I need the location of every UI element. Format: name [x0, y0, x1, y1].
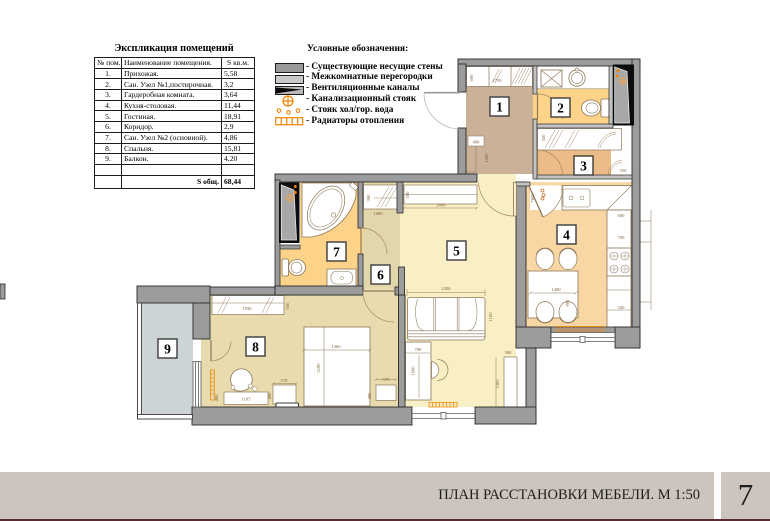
- svg-text:1100: 1100: [488, 312, 493, 322]
- svg-text:1: 1: [496, 100, 503, 115]
- svg-text:1000: 1000: [373, 211, 383, 216]
- svg-text:380: 380: [366, 194, 371, 202]
- svg-text:2: 2: [557, 101, 564, 116]
- svg-text:5: 5: [453, 244, 460, 259]
- svg-text:500: 500: [405, 191, 410, 199]
- svg-text:7: 7: [333, 245, 340, 260]
- svg-text:600: 600: [469, 74, 474, 82]
- svg-text:1195: 1195: [241, 397, 251, 402]
- svg-text:8: 8: [252, 340, 259, 355]
- svg-text:550: 550: [620, 168, 628, 173]
- svg-text:650: 650: [285, 302, 290, 310]
- svg-text:400: 400: [267, 392, 272, 400]
- svg-text:330: 330: [618, 305, 626, 310]
- svg-text:9: 9: [164, 342, 171, 357]
- svg-text:2200: 2200: [441, 286, 451, 291]
- svg-text:1750: 1750: [492, 78, 502, 83]
- svg-text:350: 350: [541, 134, 546, 142]
- svg-text:6: 6: [377, 268, 384, 283]
- svg-text:400: 400: [473, 140, 481, 145]
- svg-text:1200: 1200: [484, 153, 489, 163]
- svg-text:900: 900: [565, 299, 570, 307]
- svg-text:700: 700: [618, 235, 626, 240]
- svg-text:400: 400: [214, 394, 219, 402]
- svg-text:4: 4: [563, 228, 570, 243]
- svg-text:380: 380: [505, 350, 513, 355]
- svg-text:1360: 1360: [331, 344, 341, 349]
- svg-text:1600: 1600: [411, 366, 416, 376]
- svg-text:600: 600: [618, 213, 626, 218]
- svg-text:570: 570: [281, 378, 289, 383]
- svg-text:400: 400: [367, 392, 372, 400]
- svg-text:3: 3: [580, 159, 587, 174]
- svg-text:2190: 2190: [316, 363, 321, 373]
- svg-text:700: 700: [415, 347, 423, 352]
- svg-text:1930: 1930: [242, 306, 252, 311]
- svg-text:1400: 1400: [551, 287, 561, 292]
- svg-text:2000: 2000: [436, 203, 446, 208]
